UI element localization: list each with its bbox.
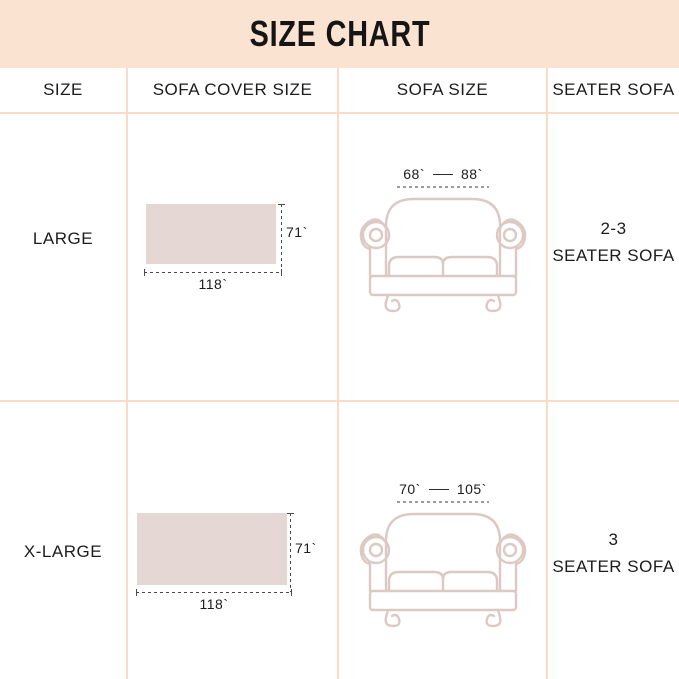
sofa-width-range: 70` 105`	[359, 479, 527, 499]
seater-text: 2-3 SEATER SOFA	[552, 215, 674, 269]
size-chart-page: SIZE CHART SIZE SOFA COVER SIZE SOFA SIZ…	[0, 0, 679, 679]
cover-height-label: 71`	[295, 540, 317, 556]
column-header-sofa-cover-size: SOFA COVER SIZE	[128, 68, 339, 112]
seater-sofa-cell: 2-3 SEATER SOFA	[548, 114, 679, 400]
size-cell: LARGE	[0, 114, 128, 400]
range-dash-line	[429, 489, 449, 490]
title-band: SIZE CHART	[0, 0, 679, 68]
sofa-cover-size-cell: 71` 118`	[128, 114, 339, 400]
column-header-seater-sofa: SEATER SOFA	[548, 68, 679, 112]
width-measure-line	[144, 272, 282, 273]
sofa-width-dashed-line	[397, 501, 489, 503]
page-title: SIZE CHART	[249, 13, 430, 55]
seater-sofa-cell: 3 SEATER SOFA	[548, 402, 679, 679]
sofa-width-dashed-line	[397, 186, 489, 188]
sofa-max-width-label: 105`	[457, 481, 487, 497]
height-measure-line	[290, 513, 291, 592]
seater-text: 3 SEATER SOFA	[552, 526, 674, 580]
size-chart-table: SIZE SOFA COVER SIZE SOFA SIZE SEATER SO…	[0, 68, 679, 679]
cover-rectangle	[146, 204, 276, 264]
seater-label: SEATER SOFA	[552, 242, 674, 269]
height-measure-line	[281, 204, 282, 270]
sofa-illustration	[359, 190, 527, 314]
column-header-sofa-size: SOFA SIZE	[339, 68, 548, 112]
sofa-min-width-label: 68`	[403, 166, 425, 182]
sofa-illustration	[359, 505, 527, 629]
sofa-diagram: 68` 88`	[359, 164, 527, 314]
cover-rectangle	[137, 513, 287, 585]
seater-count: 2-3	[552, 215, 674, 242]
sofa-size-cell: 68` 88`	[339, 114, 548, 400]
seater-label: SEATER SOFA	[552, 553, 674, 580]
table-row-large: LARGE 71` 118` 68` 88`	[0, 114, 679, 402]
cover-width-label: 118`	[144, 276, 282, 292]
column-header-size: SIZE	[0, 68, 128, 112]
sofa-min-width-label: 70`	[399, 481, 421, 497]
table-row-x-large: X-LARGE 71` 118` 70` 105`	[0, 402, 679, 679]
cover-height-label: 71`	[286, 224, 308, 240]
sofa-size-cell: 70` 105`	[339, 402, 548, 679]
width-measure-line	[136, 592, 292, 593]
sofa-cover-diagram: 71` 118`	[128, 114, 337, 400]
sofa-max-width-label: 88`	[461, 166, 483, 182]
range-dash-line	[433, 174, 453, 175]
size-cell: X-LARGE	[0, 402, 128, 679]
sofa-cover-size-cell: 71` 118`	[128, 402, 339, 679]
table-header-row: SIZE SOFA COVER SIZE SOFA SIZE SEATER SO…	[0, 68, 679, 114]
seater-count: 3	[552, 526, 674, 553]
sofa-cover-diagram: 71` 118`	[128, 402, 337, 679]
sofa-diagram: 70` 105`	[359, 479, 527, 629]
cover-width-label: 118`	[136, 596, 292, 612]
sofa-width-range: 68` 88`	[359, 164, 527, 184]
